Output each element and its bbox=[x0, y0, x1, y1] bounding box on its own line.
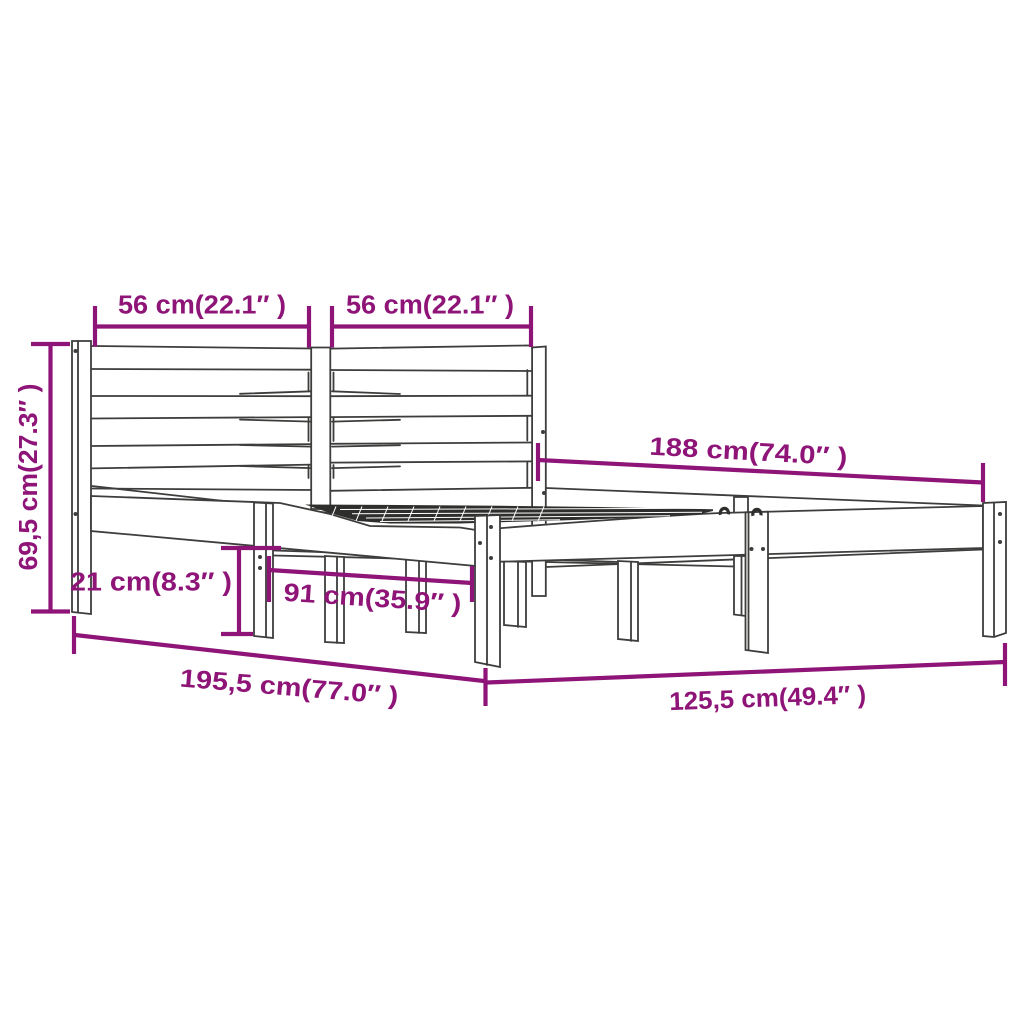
svg-text:56 cm(22.1″ ): 56 cm(22.1″ ) bbox=[118, 292, 286, 320]
svg-text:69,5 cm(27.3″ ): 69,5 cm(27.3″ ) bbox=[15, 384, 43, 571]
svg-text:21 cm(8.3″ ): 21 cm(8.3″ ) bbox=[70, 569, 232, 597]
svg-text:56 cm(22.1″ ): 56 cm(22.1″ ) bbox=[346, 292, 514, 320]
